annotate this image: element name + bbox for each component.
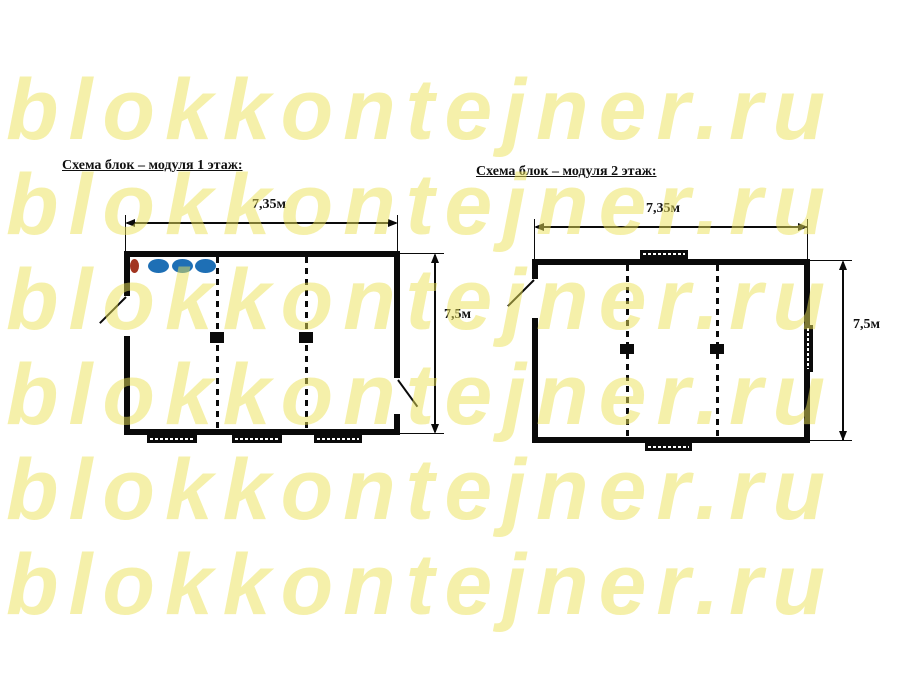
window-glass bbox=[643, 253, 685, 255]
fixture-blue-2 bbox=[172, 259, 193, 273]
fixture-red bbox=[130, 259, 139, 273]
watermark-text: blokkontejner.ru bbox=[6, 252, 900, 348]
fixture-blue-1 bbox=[148, 259, 169, 273]
width-dimension-label: 7,35м bbox=[646, 201, 680, 217]
height-dimension-label: 7,5м bbox=[853, 317, 880, 333]
window-right bbox=[804, 325, 813, 372]
window-bottom-3 bbox=[314, 435, 362, 443]
dimension-line bbox=[127, 222, 396, 224]
window-bottom bbox=[645, 443, 692, 451]
watermark-text: blokkontejner.ru bbox=[6, 537, 900, 633]
fixture-blue-3 bbox=[195, 259, 216, 273]
window-glass bbox=[235, 438, 279, 440]
wall-top bbox=[532, 259, 810, 265]
partition-door-2 bbox=[299, 332, 313, 343]
wall-right-lower bbox=[394, 414, 400, 435]
arrowhead-left-icon bbox=[125, 219, 135, 227]
watermark-text: blokkontejner.ru bbox=[6, 62, 900, 158]
door-swing-right bbox=[397, 379, 418, 407]
dimension-line bbox=[536, 226, 807, 228]
arrowhead-right-icon bbox=[798, 223, 808, 231]
door-swing-left bbox=[507, 279, 535, 307]
wall-left-lower bbox=[532, 318, 538, 443]
window-top bbox=[640, 250, 688, 259]
window-glass bbox=[648, 446, 689, 448]
window-glass bbox=[150, 438, 194, 440]
partition-2 bbox=[305, 257, 308, 429]
window-glass bbox=[317, 438, 359, 440]
wall-left-lower bbox=[124, 336, 130, 435]
arrowhead-down-icon bbox=[839, 431, 847, 441]
watermark-text: blokkontejner.ru bbox=[6, 442, 900, 538]
wall-right-upper bbox=[394, 251, 400, 378]
width-dimension-label: 7,35м bbox=[252, 197, 286, 213]
dimension-line bbox=[842, 262, 844, 440]
arrowhead-down-icon bbox=[431, 424, 439, 434]
partition-door-1 bbox=[620, 344, 634, 354]
partition-door-1 bbox=[210, 332, 224, 343]
door-swing-left bbox=[99, 296, 127, 324]
watermark-layer: blokkontejner.rublokkontejner.rublokkont… bbox=[0, 0, 900, 675]
window-bottom-1 bbox=[147, 435, 197, 443]
plan-title-floor1: Схема блок – модуля 1 этаж: bbox=[62, 158, 243, 174]
arrowhead-left-icon bbox=[534, 223, 544, 231]
plan-title-floor2: Схема блок – модуля 2 этаж: bbox=[476, 164, 657, 180]
arrowhead-up-icon bbox=[839, 260, 847, 270]
wall-left-upper bbox=[124, 251, 130, 296]
arrowhead-up-icon bbox=[431, 253, 439, 263]
height-dimension-label: 7,5м bbox=[444, 307, 471, 323]
partition-door-2 bbox=[710, 344, 724, 354]
window-bottom-2 bbox=[232, 435, 282, 443]
partition-1 bbox=[216, 257, 219, 429]
dimension-line bbox=[434, 255, 436, 432]
wall-left-upper bbox=[532, 259, 538, 279]
arrowhead-right-icon bbox=[388, 219, 398, 227]
wall-top bbox=[124, 251, 400, 257]
window-glass bbox=[807, 328, 809, 369]
